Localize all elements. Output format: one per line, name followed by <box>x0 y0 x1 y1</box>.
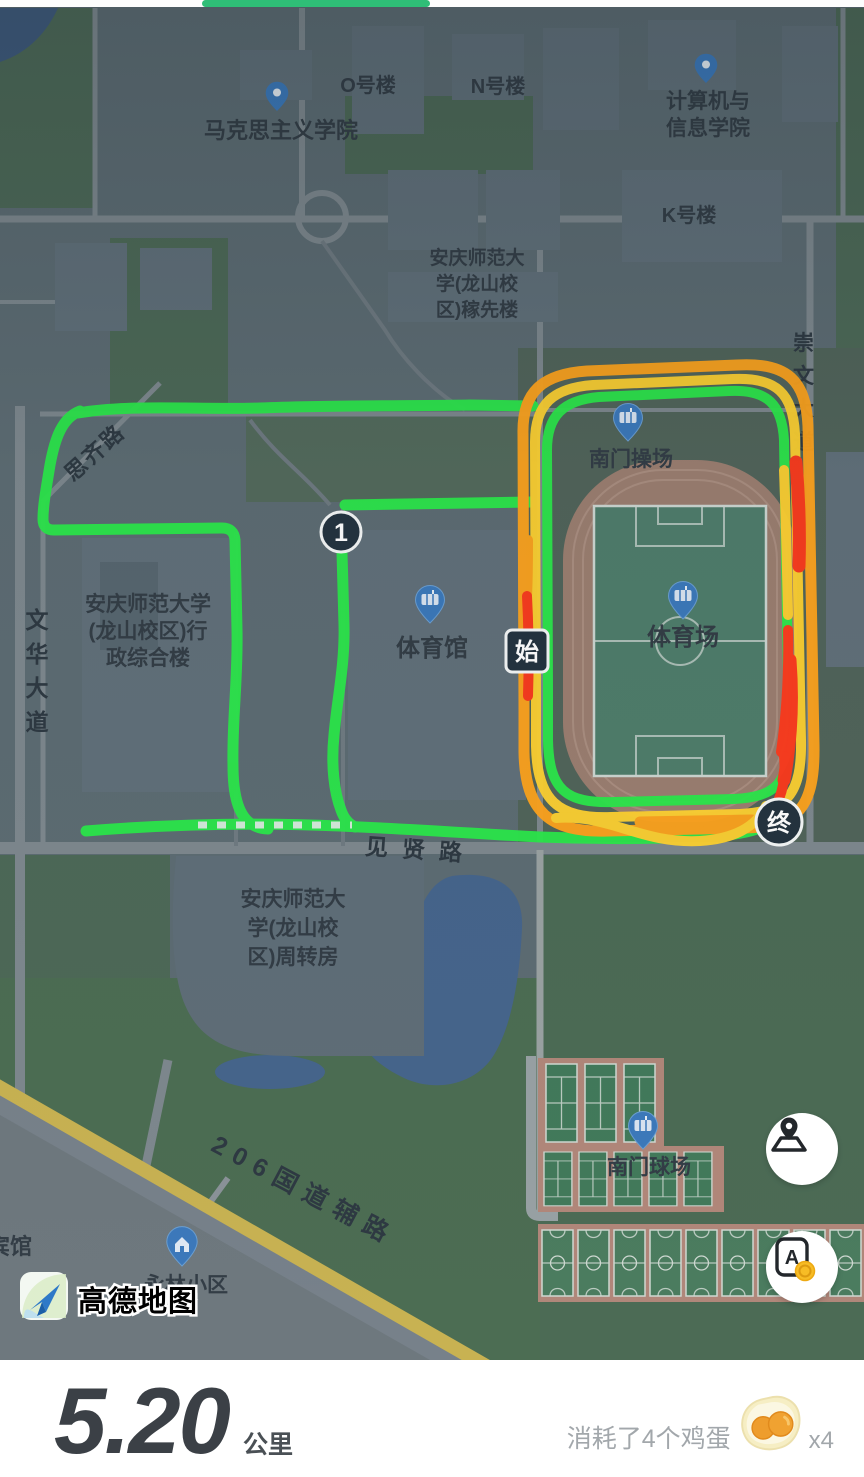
language-button[interactable]: A <box>766 1231 838 1303</box>
svg-text:终: 终 <box>767 809 792 837</box>
locate-runner-button[interactable] <box>766 1113 838 1185</box>
label-playground: 南门操场 <box>589 447 673 471</box>
km-marker-1: 1 <box>321 512 361 552</box>
calorie-note: 消耗了4个鸡蛋 <box>567 1419 731 1457</box>
label-zhouzhuan-2: 学(龙山校 <box>248 916 340 940</box>
label-jiaxian-3: 区)稼先楼 <box>436 298 518 321</box>
progress-bar <box>202 0 430 7</box>
run-summary-bar: 5.20 公里 消耗了4个鸡蛋 x4 <box>0 1360 864 1477</box>
svg-text:始: 始 <box>515 639 539 666</box>
end-marker: 终 <box>756 799 802 845</box>
label-k-building: K号楼 <box>662 204 716 227</box>
translate-icon: A <box>766 1231 818 1283</box>
coin-badge <box>796 1262 815 1281</box>
start-marker: 始 <box>506 630 548 672</box>
distance-value: 5.20 <box>54 1381 229 1461</box>
label-o-building: O号楼 <box>340 74 396 97</box>
svg-text:1: 1 <box>334 519 348 547</box>
egg-multiplier: x4 <box>809 1427 834 1457</box>
label-zhouzhuan-3: 区)周转房 <box>248 945 339 969</box>
label-admin-2: (龙山校区)行 <box>89 619 208 643</box>
label-gym: 体育馆 <box>396 634 468 662</box>
label-south-courts: 南门球场 <box>607 1155 691 1179</box>
fried-egg-icon <box>739 1392 803 1463</box>
label-cs-1: 计算机与 <box>666 89 750 113</box>
label-admin-3: 政综合楼 <box>106 646 190 670</box>
label-zhouzhuan-1: 安庆师范大 <box>241 887 346 911</box>
distance-unit: 公里 <box>243 1425 293 1461</box>
label-hotel: 宾馆 <box>0 1234 32 1259</box>
label-jiaxian-2: 学(龙山校 <box>436 272 519 295</box>
label-stadium: 体育场 <box>647 623 719 651</box>
status-strip <box>0 0 864 7</box>
label-marxism: 马克思主义学院 <box>204 118 358 143</box>
label-admin-1: 安庆师范大学 <box>85 592 211 616</box>
map-view[interactable]: 思齐路 崇文大道 O号楼 N号楼 马克思主义学院 计算机与 信息学院 K号楼 安… <box>0 0 864 1360</box>
amap-logo-text: 高德地图 <box>78 1285 198 1318</box>
label-cs-2: 信息学院 <box>666 116 750 140</box>
label-jiaxian-1: 安庆师范大 <box>429 246 524 269</box>
pond-small <box>215 1055 325 1089</box>
label-n-building: N号楼 <box>471 75 525 98</box>
person-location-icon <box>766 1113 812 1159</box>
